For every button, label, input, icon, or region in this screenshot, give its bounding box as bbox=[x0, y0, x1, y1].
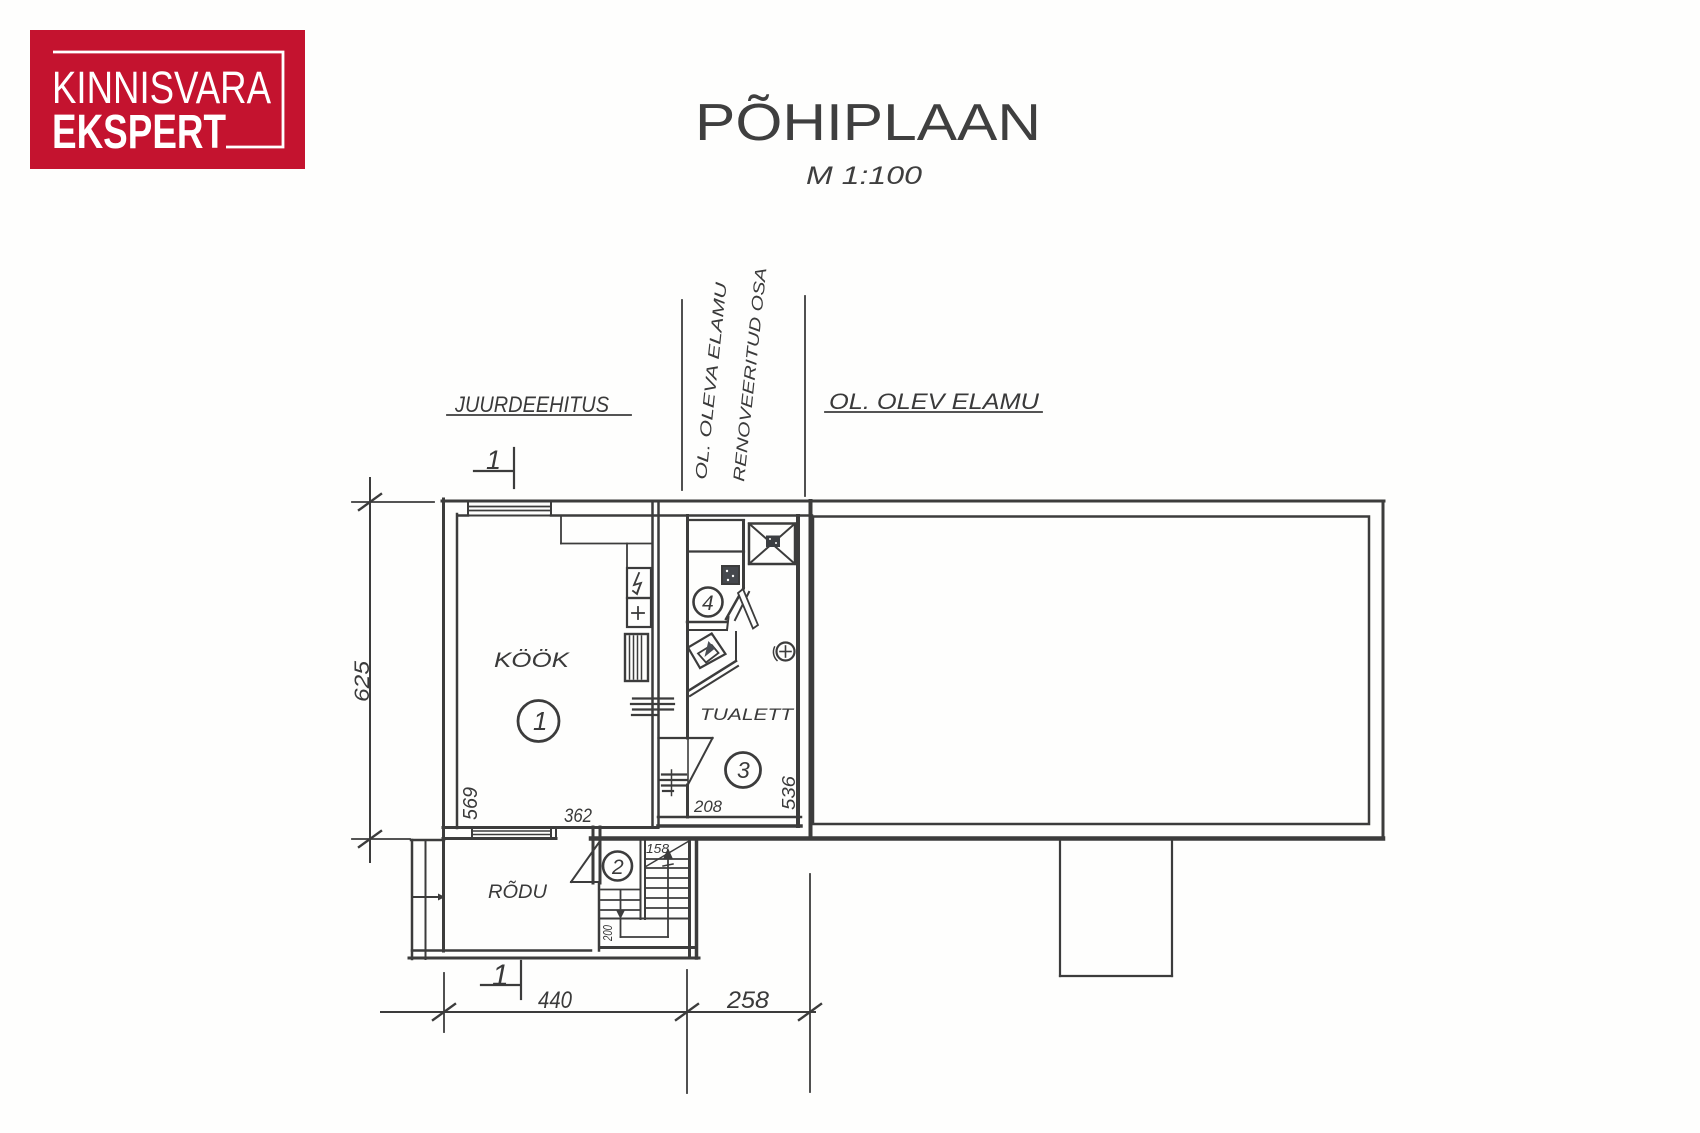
svg-text:OL. OLEV ELAMU: OL. OLEV ELAMU bbox=[829, 389, 1039, 414]
svg-text:1: 1 bbox=[486, 445, 501, 475]
svg-text:EKSPERT: EKSPERT bbox=[52, 106, 226, 159]
svg-text:625: 625 bbox=[351, 661, 374, 702]
svg-text:3: 3 bbox=[737, 757, 750, 783]
svg-text:KÖÖK: KÖÖK bbox=[494, 649, 570, 672]
svg-text:258: 258 bbox=[726, 987, 770, 1014]
svg-text:440: 440 bbox=[538, 987, 573, 1014]
svg-text:JUURDEEHITUS: JUURDEEHITUS bbox=[454, 392, 609, 417]
svg-text:536: 536 bbox=[779, 775, 799, 810]
svg-text:200: 200 bbox=[600, 924, 615, 941]
svg-text:362: 362 bbox=[564, 806, 592, 827]
svg-text:TUALETT: TUALETT bbox=[700, 705, 795, 724]
svg-text:2: 2 bbox=[611, 856, 624, 879]
svg-text:208: 208 bbox=[693, 797, 723, 816]
svg-text:M 1:100: M 1:100 bbox=[806, 162, 922, 190]
svg-text:569: 569 bbox=[460, 787, 482, 820]
svg-text:4: 4 bbox=[702, 592, 714, 615]
svg-text:1: 1 bbox=[533, 706, 547, 736]
svg-text:158: 158 bbox=[646, 841, 670, 856]
svg-text:PÕHIPLAAN: PÕHIPLAAN bbox=[695, 94, 1041, 152]
svg-text:1: 1 bbox=[492, 959, 509, 992]
svg-text:RÕDU: RÕDU bbox=[488, 881, 547, 903]
